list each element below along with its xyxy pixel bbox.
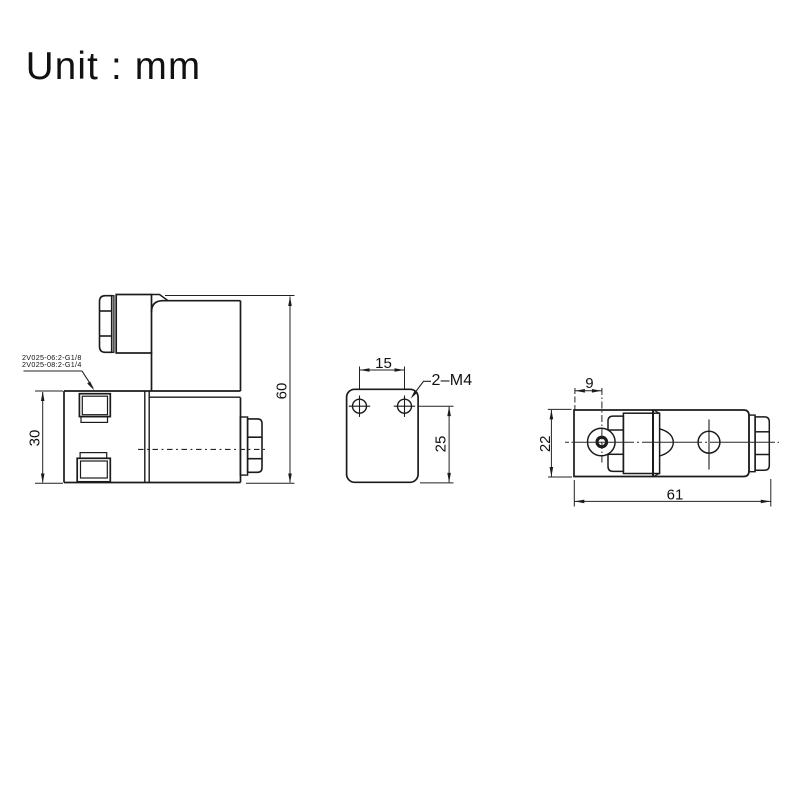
svg-text:22: 22 [537,435,554,452]
svg-text:61: 61 [667,487,684,504]
svg-text:60: 60 [273,383,290,400]
svg-text:Unit : mm: Unit : mm [26,45,202,88]
svg-text:9: 9 [585,375,593,392]
svg-text:15: 15 [375,355,392,372]
svg-text:2–M4: 2–M4 [432,372,473,389]
svg-text:30: 30 [26,430,43,447]
svg-text:2V025-08:2-G1/4: 2V025-08:2-G1/4 [22,360,82,369]
svg-text:25: 25 [433,436,450,453]
